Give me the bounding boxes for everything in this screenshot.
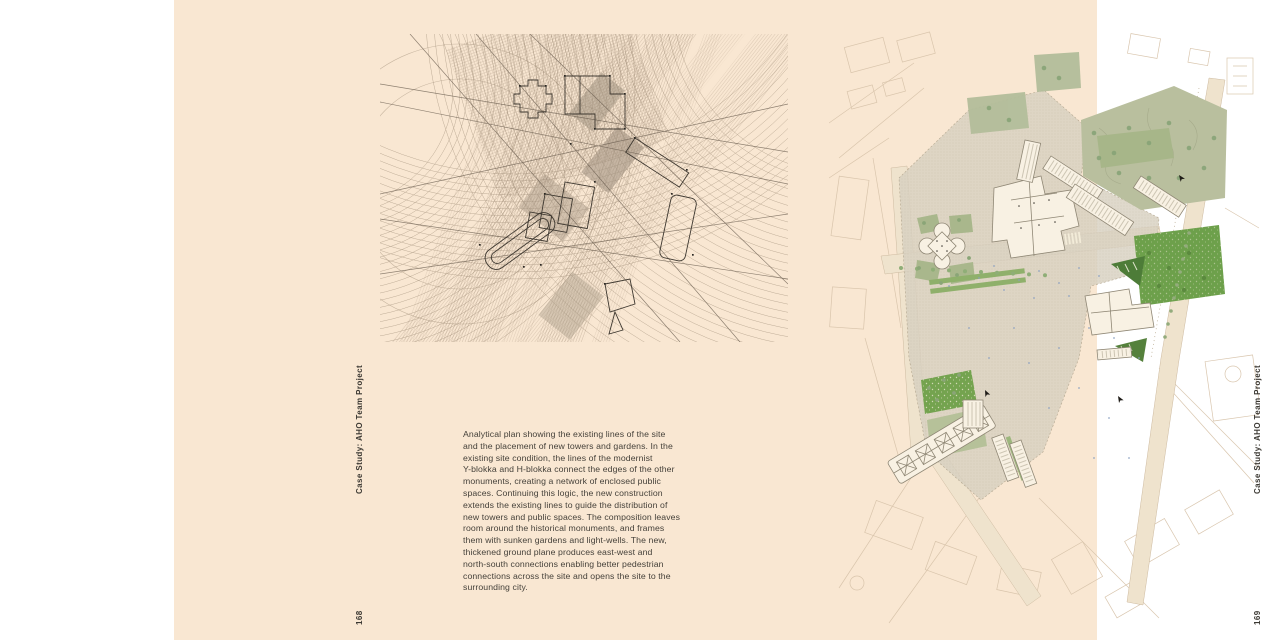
figure-caption: Analytical plan showing the existing lin… [463,429,680,594]
caption-line: thickened ground plane produces east-wes… [463,547,680,559]
caption-line: extends the existing lines to guide the … [463,500,680,512]
caption-line: them with sunken gardens and light-wells… [463,535,680,547]
caption-line: room around the historical monuments, an… [463,523,680,535]
caption-line: and the placement of new towers and gard… [463,441,680,453]
caption-line: monuments, creating a network of enclose… [463,476,680,488]
caption-line: spaces. Continuing this logic, the new c… [463,488,680,500]
caption-line: connections across the site and opens th… [463,571,680,583]
caption-line: surrounding city. [463,582,680,594]
caption-line: north-south connections enabling better … [463,559,680,571]
page-number-right: 169 [1253,597,1262,625]
caption-line: new towers and public spaces. The compos… [463,512,680,524]
caption-line: Analytical plan showing the existing lin… [463,429,680,441]
side-label-right: Case Study: AHO Team Project [1253,354,1262,494]
caption-line: existing site condition, the lines of th… [463,453,680,465]
caption-line: Y-blokka and H-blokka connect the edges … [463,464,680,476]
analytical-plan-figure [380,34,788,342]
book-spread: Analytical plan showing the existing lin… [174,0,1097,640]
tower-building [963,400,983,428]
site-plan-figure [829,28,1259,628]
page-number-left: 168 [355,597,364,625]
page-background: { "spread": { "colors": { "paper": "#f9e… [0,0,1280,640]
side-label-left: Case Study: AHO Team Project [355,354,364,494]
